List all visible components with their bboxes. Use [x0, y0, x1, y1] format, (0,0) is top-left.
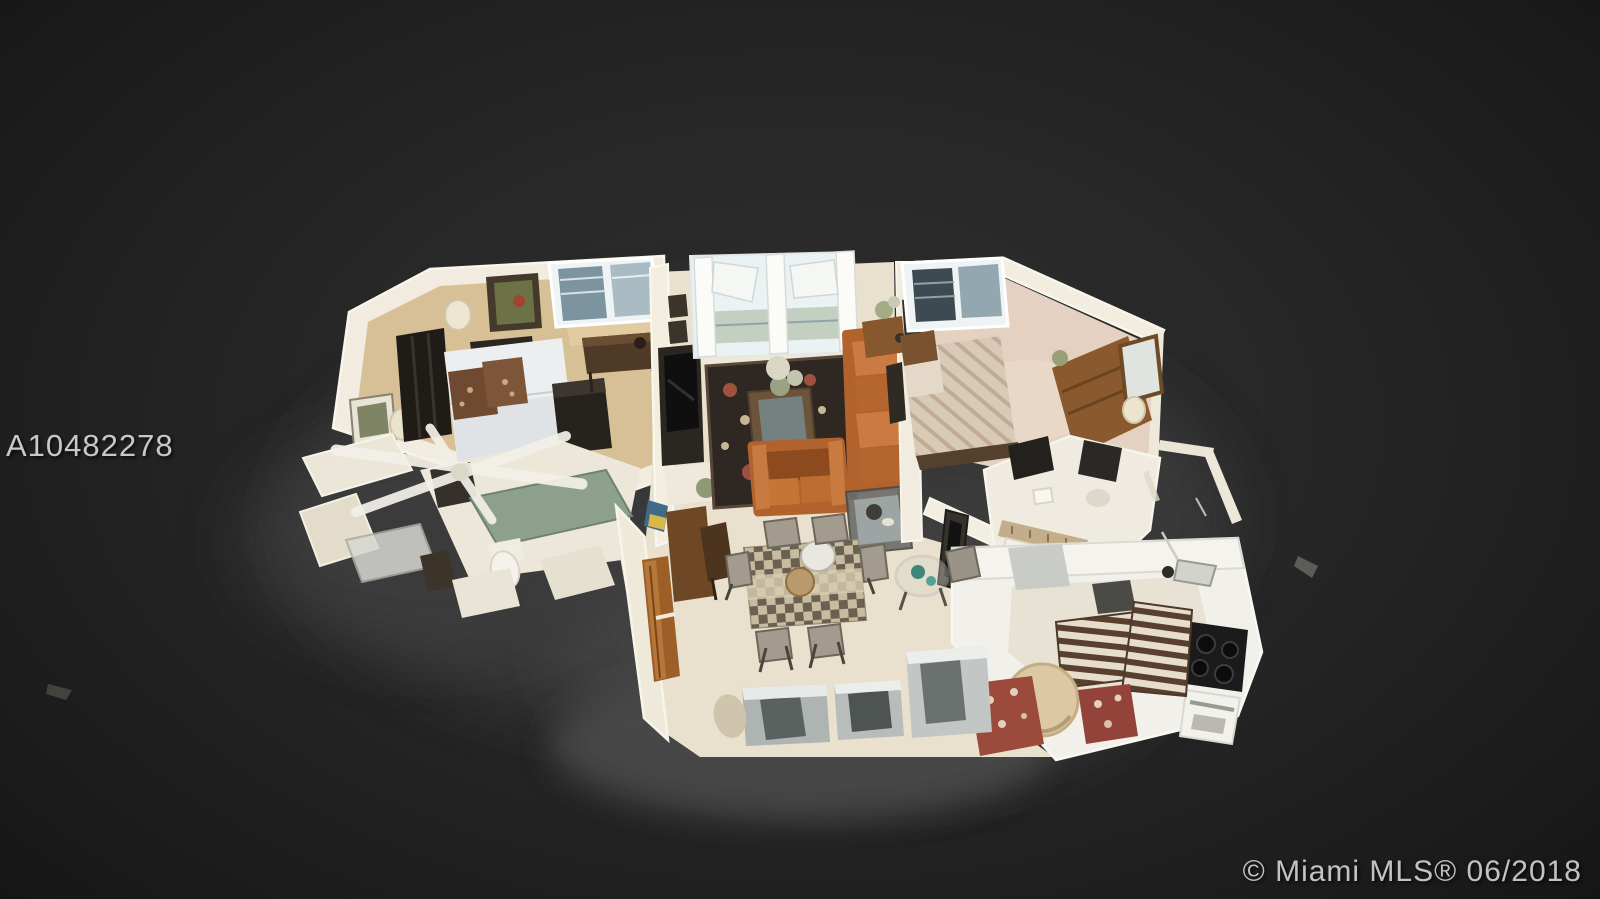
- oven: [1180, 690, 1240, 744]
- sink: [1086, 489, 1110, 507]
- nightstand: [900, 330, 938, 366]
- kitchen-room: [952, 538, 1262, 760]
- dollhouse-3d-view: [0, 0, 1600, 899]
- mls-listing-watermark: A10482278: [6, 428, 174, 464]
- floral-chair: [1078, 684, 1138, 744]
- side-chair: [946, 546, 980, 582]
- mls-copyright-credit: © Miami MLS® 06/2018: [1243, 855, 1582, 889]
- striped-rug: [1122, 602, 1192, 696]
- picture-frame: [668, 294, 688, 318]
- bedroom-2-room: [900, 258, 1164, 470]
- cooktop: [1186, 622, 1248, 692]
- bedroom2-window: [902, 258, 1008, 331]
- table-lamp: [445, 300, 471, 330]
- kitchen-sink: [1092, 580, 1136, 614]
- picture-frame: [668, 320, 688, 344]
- mls-photo-canvas: A10482278 © Miami MLS® 06/2018: [0, 0, 1600, 899]
- dining-table: [744, 540, 866, 628]
- master-bedroom-window: [549, 258, 659, 327]
- balcony-doors: [690, 251, 858, 358]
- loveseat: [752, 440, 846, 512]
